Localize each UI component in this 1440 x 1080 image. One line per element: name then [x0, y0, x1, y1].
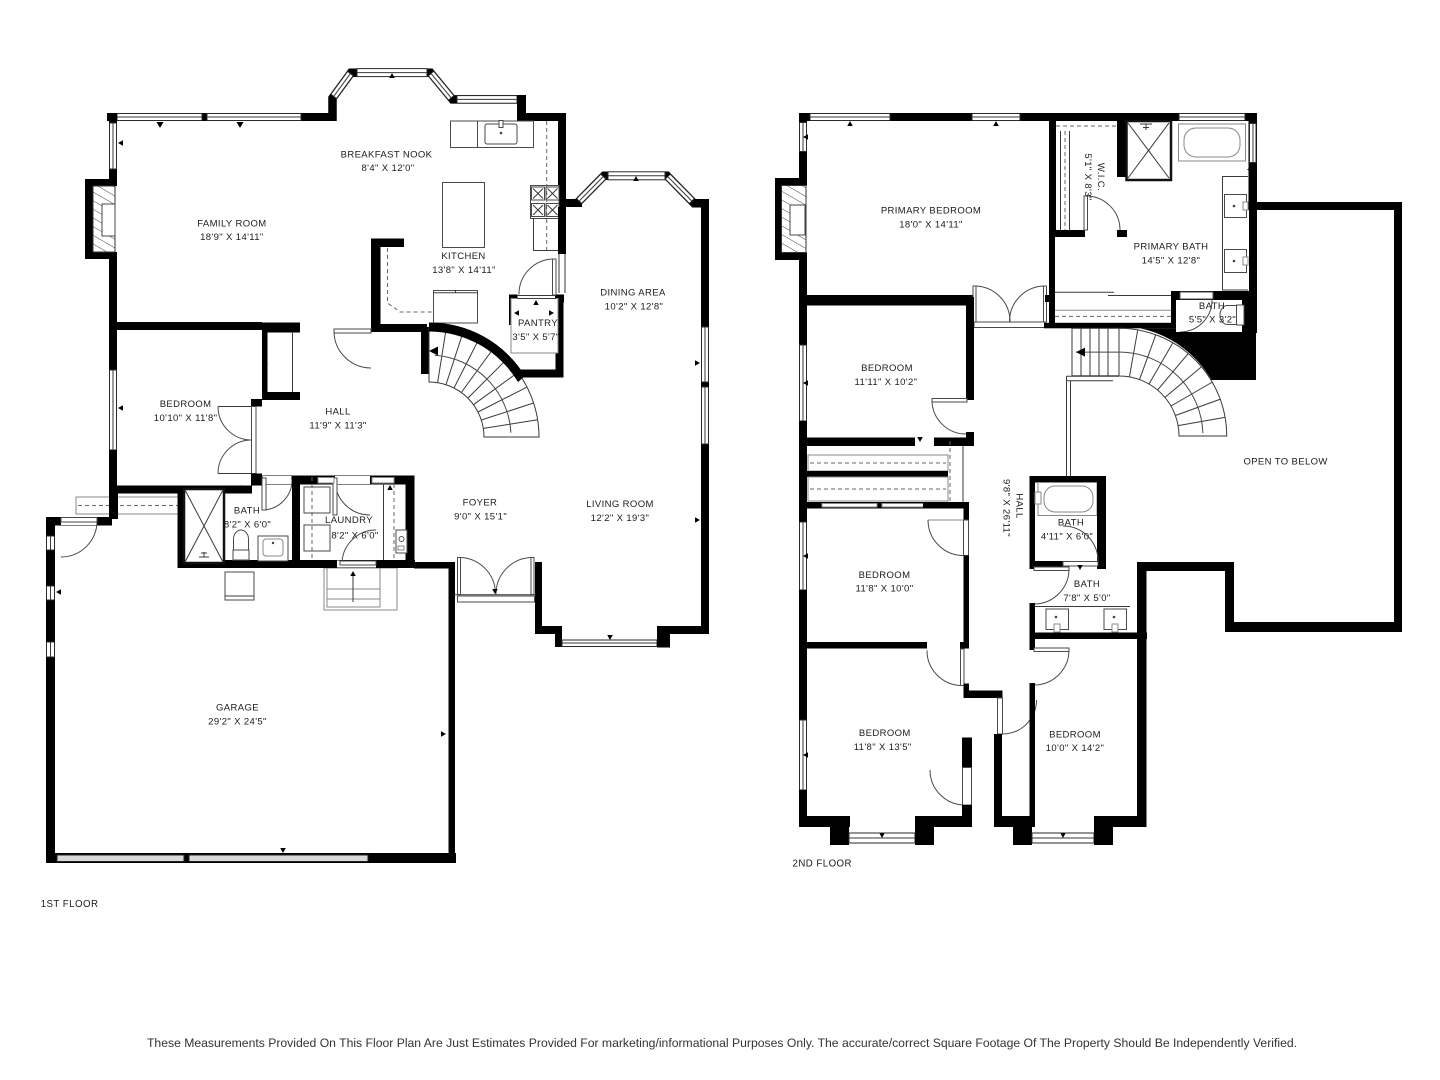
svg-text:3'5" X 5'7": 3'5" X 5'7": [512, 332, 559, 343]
svg-text:9'0" X 15'1": 9'0" X 15'1": [454, 511, 507, 522]
svg-text:BEDROOM: BEDROOM: [859, 728, 911, 739]
svg-text:BEDROOM: BEDROOM: [861, 363, 913, 374]
svg-text:DINING AREA: DINING AREA: [600, 288, 666, 299]
svg-text:GARAGE: GARAGE: [216, 703, 259, 714]
svg-text:LIVING ROOM: LIVING ROOM: [586, 499, 654, 510]
svg-text:KITCHEN: KITCHEN: [441, 251, 485, 262]
svg-text:8'2" X 6'0": 8'2" X 6'0": [331, 531, 378, 542]
svg-text:14'5" X 12'8": 14'5" X 12'8": [1142, 255, 1201, 266]
svg-text:7'8" X 5'0": 7'8" X 5'0": [1063, 593, 1110, 604]
svg-text:PRIMARY BATH: PRIMARY BATH: [1134, 242, 1209, 253]
svg-text:11'11" X 10'2": 11'11" X 10'2": [855, 377, 918, 388]
svg-text:9'8" X 26'11": 9'8" X 26'11": [1001, 479, 1012, 537]
svg-text:BREAKFAST NOOK: BREAKFAST NOOK: [341, 149, 433, 160]
svg-text:12'2" X 19'3": 12'2" X 19'3": [591, 513, 650, 524]
svg-text:4'11" X 6'0": 4'11" X 6'0": [1041, 531, 1093, 542]
svg-text:5'1" X 8'3": 5'1" X 8'3": [1082, 153, 1093, 200]
svg-text:2ND FLOOR: 2ND FLOOR: [793, 859, 853, 870]
svg-text:PRIMARY BEDROOM: PRIMARY BEDROOM: [881, 206, 981, 217]
svg-text:BEDROOM: BEDROOM: [859, 570, 911, 581]
svg-text:18'9" X 14'11": 18'9" X 14'11": [200, 232, 264, 243]
svg-text:10'10" X 11'8": 10'10" X 11'8": [154, 413, 218, 424]
svg-text:1ST FLOOR: 1ST FLOOR: [41, 899, 99, 910]
svg-text:PANTRY: PANTRY: [518, 318, 558, 329]
svg-text:BATH: BATH: [1058, 518, 1084, 529]
svg-text:FAMILY ROOM: FAMILY ROOM: [197, 218, 266, 229]
svg-text:BATH: BATH: [1074, 579, 1100, 590]
svg-text:W.I.C.: W.I.C.: [1095, 163, 1106, 191]
svg-text:BEDROOM: BEDROOM: [160, 399, 212, 410]
svg-text:FOYER: FOYER: [463, 498, 498, 509]
svg-text:HALL: HALL: [325, 407, 350, 418]
svg-text:HALL: HALL: [1014, 493, 1025, 518]
svg-text:These Measurements Provided On: These Measurements Provided On This Floo…: [147, 1036, 1297, 1050]
svg-text:8'4" X 12'0": 8'4" X 12'0": [362, 163, 415, 174]
svg-text:BATH: BATH: [1199, 301, 1225, 312]
svg-text:10'0" X 14'2": 10'0" X 14'2": [1046, 743, 1105, 754]
svg-text:11'8" X 13'5": 11'8" X 13'5": [854, 742, 912, 753]
svg-text:10'2" X 12'8": 10'2" X 12'8": [605, 301, 664, 312]
svg-text:29'2" X 24'5": 29'2" X 24'5": [208, 716, 267, 727]
svg-text:18'0" X 14'11": 18'0" X 14'11": [899, 220, 963, 231]
svg-text:8'2" X 6'0": 8'2" X 6'0": [224, 519, 271, 530]
svg-text:13'8" X 14'11": 13'8" X 14'11": [432, 265, 496, 276]
svg-text:BATH: BATH: [234, 506, 260, 517]
svg-text:11'8" X 10'0": 11'8" X 10'0": [856, 584, 914, 595]
svg-text:11'9" X 11'3": 11'9" X 11'3": [309, 420, 366, 431]
svg-text:BEDROOM: BEDROOM: [1049, 730, 1101, 741]
svg-text:LAUNDRY: LAUNDRY: [325, 515, 373, 526]
svg-text:OPEN TO BELOW: OPEN TO BELOW: [1243, 457, 1327, 468]
svg-text:5'5" X 3'2": 5'5" X 3'2": [1189, 315, 1236, 326]
